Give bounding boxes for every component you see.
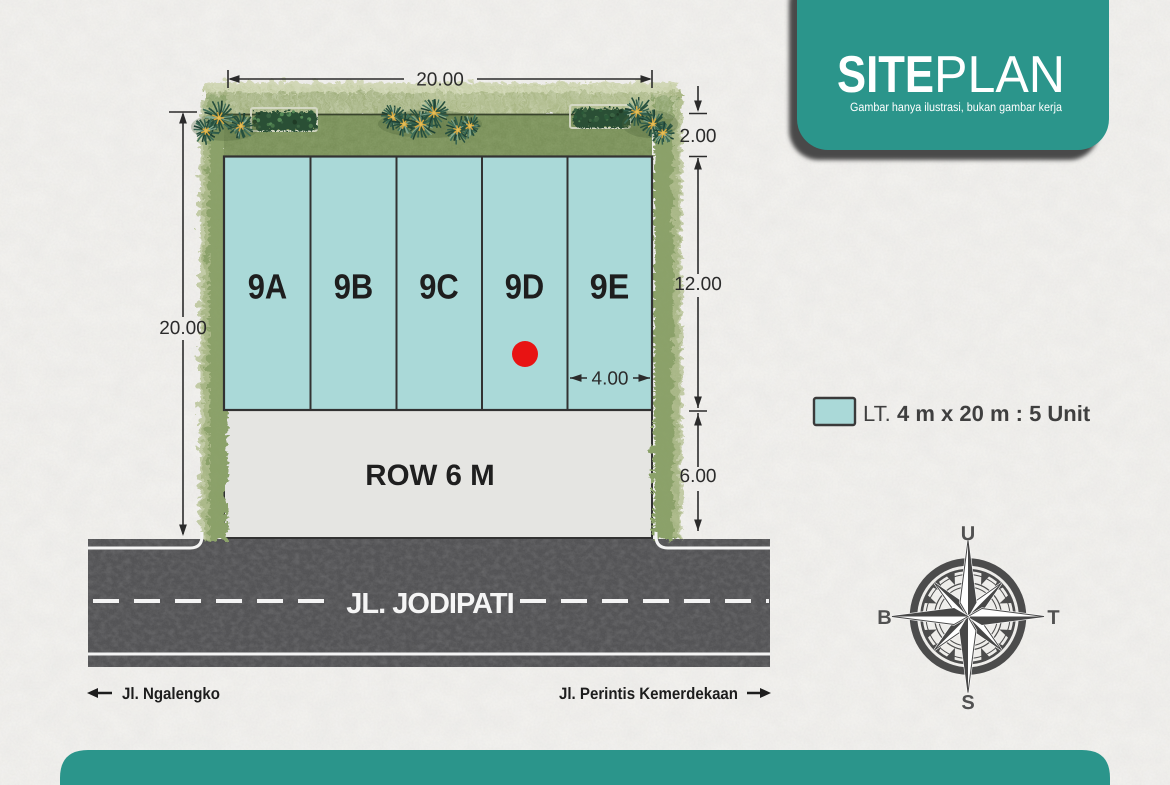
svg-text:2.00: 2.00 <box>680 126 717 147</box>
svg-text:ROW 6 M: ROW 6 M <box>365 459 494 492</box>
svg-text:SITE: SITE <box>837 46 934 104</box>
svg-text:Jl. Ngalengko: Jl. Ngalengko <box>122 685 220 703</box>
svg-text:4 m x 20 m : 5 Unit: 4 m x 20 m : 5 Unit <box>897 401 1091 426</box>
svg-text:T: T <box>1047 607 1059 629</box>
svg-text:9C: 9C <box>419 268 459 307</box>
svg-text:JL. JODIPATI: JL. JODIPATI <box>346 588 513 620</box>
svg-text:S: S <box>961 692 974 714</box>
svg-text:9D: 9D <box>505 268 545 307</box>
svg-text:LT.: LT. <box>863 401 891 426</box>
svg-text:Gambar hanya ilustrasi, bukan: Gambar hanya ilustrasi, bukan gambar ker… <box>850 100 1062 114</box>
svg-text:U: U <box>961 523 975 545</box>
svg-text:PLAN: PLAN <box>934 46 1065 104</box>
svg-text:4.00: 4.00 <box>592 369 629 390</box>
svg-text:9A: 9A <box>248 268 288 307</box>
svg-text:9E: 9E <box>590 268 630 307</box>
svg-text:B: B <box>877 607 891 629</box>
svg-text:12.00: 12.00 <box>674 274 722 295</box>
svg-text:Jl. Perintis Kemerdekaan: Jl. Perintis Kemerdekaan <box>559 685 738 703</box>
svg-text:9B: 9B <box>334 268 374 307</box>
svg-text:20.00: 20.00 <box>159 318 207 339</box>
svg-text:20.00: 20.00 <box>416 70 464 91</box>
svg-text:6.00: 6.00 <box>680 466 717 487</box>
